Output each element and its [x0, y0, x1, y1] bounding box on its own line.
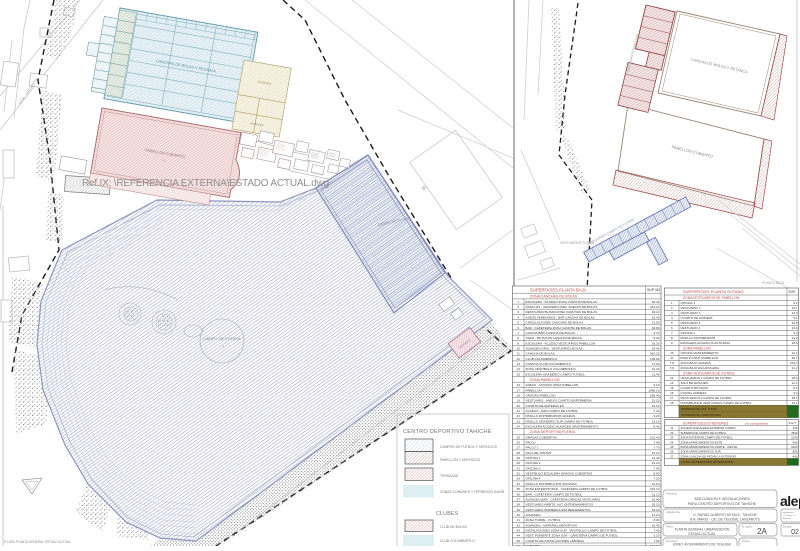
svg-text:ALMACEN - MATERIAL DEPORTIVO: ALMACEN - MATERIAL DEPORTIVO [526, 523, 578, 527]
svg-text:9.20: 9.20 [653, 414, 659, 418]
svg-text:38: 38 [516, 503, 520, 507]
svg-text:201.10: 201.10 [650, 487, 660, 491]
svg-text:DISTRIBUIDOR VESTUARIOS CAMPO: DISTRIBUIDOR VESTUARIOS CAMPO DE FUTBOL [681, 401, 753, 405]
svg-text:4: 4 [517, 315, 519, 319]
svg-text:SUPERFICIES PLANTA BAJA: SUPERFICIES PLANTA BAJA [530, 287, 587, 292]
svg-text:8.40: 8.40 [653, 425, 659, 429]
svg-text:PASILLO DISTRIBUCION OFICINAS: PASILLO DISTRIBUCION OFICINAS [526, 482, 577, 486]
svg-text:OFICINA MANTENIMIENTO: OFICINA MANTENIMIENTO [681, 351, 720, 355]
svg-text:18: 18 [670, 401, 674, 405]
svg-text:PASILLO DISTRIBUIDOR GRADAS: PASILLO DISTRIBUIDOR GRADAS [526, 414, 576, 418]
svg-text:15: 15 [516, 372, 520, 376]
svg-text:7.40: 7.40 [653, 528, 659, 532]
svg-text:OFICINA 3: OFICINA 3 [526, 466, 541, 470]
svg-text:02: 02 [791, 529, 799, 536]
svg-text:7840: 7840 [791, 431, 798, 435]
svg-text:14: 14 [670, 381, 674, 385]
svg-text:1086.10: 1086.10 [648, 388, 659, 392]
svg-text:VESTUARIO PRIMEROS ENTRENAMIEN: VESTUARIO PRIMEROS ENTRENAMIENTOS [526, 508, 591, 512]
svg-text:COCINA LIMPIEZA: COCINA LIMPIEZA [681, 391, 707, 395]
svg-text:22: 22 [670, 431, 674, 435]
svg-text:SUP. M2: SUP. M2 [647, 288, 660, 292]
svg-text:ESCALERA ACCESO PLANTA BAJA: ESCALERA ACCESO PLANTA BAJA [681, 341, 731, 345]
svg-text:9.4: 9.4 [793, 331, 798, 335]
svg-text:ZONA VESTUARIOS DE PABELLON: ZONA VESTUARIOS DE PABELLON [683, 296, 740, 300]
svg-text:7.40: 7.40 [653, 441, 659, 445]
svg-text:ALMACEN: ALMACEN [526, 513, 541, 517]
svg-text:15.10: 15.10 [652, 399, 660, 403]
svg-text:21.10: 21.10 [652, 367, 660, 371]
svg-text:PASILLO DISTRIBUIDOR: PASILLO DISTRIBUIDOR [681, 336, 716, 340]
svg-text:26: 26 [670, 450, 674, 454]
svg-text:SUPERFICIES EXTERIORES: SUPERFICIES EXTERIORES [683, 421, 729, 425]
svg-text:CLUB COLOMBOFILO: CLUB COLOMBOFILO [526, 357, 558, 361]
svg-text:12: 12 [516, 357, 520, 361]
svg-text:ASEOS FEMENINOS - BAR CANCHA D: ASEOS FEMENINOS - BAR CANCHA DE BOLAS [526, 315, 595, 319]
svg-text:CAMPOS DE FUTBOL Y SERVICIOS: CAMPOS DE FUTBOL Y SERVICIOS [440, 445, 498, 449]
svg-text:INSTALACIONES ZONA SUR - VESTI: INSTALACIONES ZONA SUR - VESTIBULO CAMPO… [526, 528, 618, 532]
svg-text:92.10: 92.10 [652, 310, 660, 314]
svg-text:45: 45 [516, 539, 520, 543]
svg-text:SUPERFICIE CAMPO DE FUTBOL: SUPERFICIE CAMPO DE FUTBOL [681, 431, 727, 435]
svg-text:11.40: 11.40 [652, 456, 660, 460]
svg-text:SUPERFICIES PLANTA SOTANO: SUPERFICIES PLANTA SOTANO [683, 289, 744, 294]
svg-text:11: 11 [670, 356, 673, 360]
svg-text:CLUB DE BOLAS: CLUB DE BOLAS [440, 525, 468, 529]
svg-text:25: 25 [516, 435, 520, 439]
svg-text:27: 27 [516, 446, 520, 450]
svg-text:23: 23 [516, 419, 520, 423]
svg-text:5: 5 [517, 321, 519, 325]
svg-text:ACCESO - BAR CAMPO DE FUTBOL: ACCESO - BAR CAMPO DE FUTBOL [526, 409, 579, 413]
svg-text:CIRCULACIONES CANCHAS DE BOLAS: CIRCULACIONES CANCHAS DE BOLAS [526, 321, 584, 325]
svg-text:Proyecto: Proyecto [666, 492, 677, 496]
svg-text:10: 10 [670, 351, 674, 355]
svg-text:18: 18 [516, 394, 520, 398]
svg-text:+ 2: + 2 [220, 344, 225, 348]
svg-text:21: 21 [670, 426, 674, 430]
svg-text:ZONA CANCHAS DE BOLAS: ZONA CANCHAS DE BOLAS [530, 295, 578, 299]
svg-text:PLANTA BAJA: PLANTA BAJA [762, 281, 785, 285]
svg-text:SUPERFICIE UTIL TOTAL: SUPERFICIE UTIL TOTAL [681, 407, 718, 411]
svg-text:7.20: 7.20 [653, 539, 659, 543]
svg-text:961.20: 961.20 [650, 352, 660, 356]
svg-text:2140: 2140 [791, 436, 798, 440]
svg-text:ZONA BAJO GRADAS: ZONA BAJO GRADAS [681, 361, 711, 365]
svg-text:7.70: 7.70 [653, 446, 659, 450]
svg-text:16.40: 16.40 [652, 346, 660, 350]
svg-text:PALCO 2: PALCO 2 [526, 446, 539, 450]
svg-text:CUARTO DE INSTALACIONES LIMPIE: CUARTO DE INSTALACIONES LIMPIEZA [526, 539, 585, 543]
svg-text:TOTAL SUPERFICIES EXTERIORES: TOTAL SUPERFICIES EXTERIORES [681, 460, 733, 464]
svg-text:VESTUARIO 2: VESTUARIO 2 [681, 311, 701, 315]
svg-text:340: 340 [793, 426, 798, 430]
svg-text:42: 42 [516, 523, 520, 527]
svg-text:ALMACEN BAR - CAFETERIA GRADAS: ALMACEN BAR - CAFETERIA GRADAS VESTUARIO [526, 497, 601, 501]
svg-text:15.10: 15.10 [652, 461, 660, 465]
svg-text:36: 36 [516, 492, 520, 496]
svg-text:BAR - CAFETERIA CAMPO DE FUTBO: BAR - CAFETERIA CAMPO DE FUTBOL [526, 492, 583, 496]
svg-text:CAMPO DE FUTBOL: CAMPO DE FUTBOL [203, 336, 242, 341]
svg-text:ZONA APARCAMIENTOS NORTE - OES: ZONA APARCAMIENTOS NORTE - OESTE [681, 445, 738, 449]
svg-text:21.10: 21.10 [652, 482, 660, 486]
svg-text:43: 43 [516, 528, 520, 532]
svg-text:25: 25 [670, 445, 674, 449]
svg-text:CLUBES: CLUBES [436, 511, 459, 517]
svg-text:VESTUARIO 1: VESTUARIO 1 [681, 306, 701, 310]
svg-text:24.1: 24.1 [792, 306, 798, 310]
svg-text:ANEXO - ACCESO ZONA PABELLON: ANEXO - ACCESO ZONA PABELLON [526, 383, 579, 387]
svg-text:15.10: 15.10 [652, 419, 660, 423]
svg-text:46.90: 46.90 [652, 326, 660, 330]
svg-text:17: 17 [670, 396, 674, 400]
svg-text:32: 32 [516, 472, 520, 476]
svg-text:S.E.T.: S.E.T. [789, 421, 797, 425]
svg-text:OFICINA 4: OFICINA 4 [526, 477, 541, 481]
svg-text:CANCHA CLUB COLOMBOFILO: CANCHA CLUB COLOMBOFILO [526, 362, 572, 366]
svg-text:9: 9 [517, 341, 519, 345]
svg-text:PABELLON Y SERVICIOS: PABELLON Y SERVICIOS [440, 458, 481, 462]
svg-text:8.40: 8.40 [653, 518, 659, 522]
svg-text:SUPERFICIE CONSTRUIDA: SUPERFICIE CONSTRUIDA [681, 413, 722, 417]
svg-text:aleph: aleph [780, 493, 800, 509]
svg-text:10.40: 10.40 [652, 315, 660, 319]
svg-text:44: 44 [516, 534, 520, 538]
svg-text:34: 34 [516, 482, 520, 486]
svg-text:OFICINA 1: OFICINA 1 [681, 301, 696, 305]
svg-text:SALA DE MASAJES: SALA DE MASAJES [681, 381, 708, 385]
svg-text:Arquitectos: Arquitectos [666, 510, 681, 514]
svg-text:6.10: 6.10 [653, 383, 659, 387]
svg-text:24.3: 24.3 [792, 311, 798, 315]
svg-text:12.1: 12.1 [792, 381, 798, 385]
svg-text:860: 860 [793, 450, 798, 454]
svg-text:22: 22 [516, 414, 520, 418]
svg-text:40: 40 [516, 513, 520, 517]
svg-text:OFICINA 2: OFICINA 2 [681, 331, 696, 335]
svg-text:COCINA BAR-CANCHA DE BOLAS: COCINA BAR-CANCHA DE BOLAS [526, 331, 575, 335]
svg-text:VESTIBULO ESCALERA GRADAS CUBI: VESTIBULO ESCALERA GRADAS CUBIERTAS [526, 472, 593, 476]
svg-text:VEST. PONIENTE ZONA SUR - CAFE: VEST. PONIENTE ZONA SUR - CAFETERIA CAMP… [526, 534, 619, 538]
svg-text:ZONA APARCAMIENTOS ESTE: ZONA APARCAMIENTOS ESTE [681, 440, 723, 444]
svg-text:2A: 2A [757, 527, 767, 536]
svg-text:Plano: Plano [666, 525, 674, 529]
svg-text:EXMO. AYUNTAMIENTO DE TEGUISE: EXMO. AYUNTAMIENTO DE TEGUISE [673, 543, 732, 546]
svg-text:VESTUARIO 4: VESTUARIO 4 [681, 326, 701, 330]
svg-text:CANCHA DE BOLAS: CANCHA DE BOLAS [526, 352, 555, 356]
svg-text:ZONA CANCHA DE PETANCA EXTERIO: ZONA CANCHA DE PETANCA EXTERIOR [681, 454, 736, 458]
svg-text:29: 29 [516, 456, 520, 460]
svg-text:15.10: 15.10 [652, 404, 660, 408]
svg-text:16: 16 [670, 391, 674, 395]
svg-text:A.R. MARIO - C/E. DE TEGUISE,: A.R. MARIO - C/E. DE TEGUISE, LANZAROTE [690, 517, 761, 521]
svg-text:TERRAZAS: TERRAZAS [440, 474, 459, 478]
svg-text:136.90: 136.90 [650, 357, 660, 361]
svg-text:6: 6 [517, 326, 519, 330]
svg-text:OFICINA 2: OFICINA 2 [526, 461, 541, 465]
svg-text:1: 1 [517, 300, 519, 304]
svg-text:35: 35 [516, 487, 520, 491]
svg-text:23: 23 [670, 436, 674, 440]
svg-text:ZONA ESTERIOR CAMPO DE FUTBOL: ZONA ESTERIOR CAMPO DE FUTBOL [681, 436, 733, 440]
svg-text:PALCO: PALCO [526, 441, 537, 445]
svg-text:31.2: 31.2 [792, 336, 798, 340]
svg-text:30: 30 [516, 461, 520, 465]
svg-text:ZONA TORRE - FUTBOL: ZONA TORRE - FUTBOL [526, 518, 561, 522]
svg-text:D. RAFAEL ALBERTO Mª MUJI - T: D. RAFAEL ALBERTO Mª MUJI - TAHICHE [693, 513, 757, 517]
svg-text:ZONA VESTIBULO COLOMBOFILO: ZONA VESTIBULO COLOMBOFILO [526, 367, 577, 371]
svg-text:7-8: 7-8 [670, 361, 675, 365]
svg-text:ACCESO ESCALERA EXTERIOR CAMPO: ACCESO ESCALERA EXTERIOR CAMPO [681, 426, 737, 430]
svg-text:PABELLON: PABELLON [526, 388, 542, 392]
svg-text:12.4: 12.4 [792, 351, 798, 355]
svg-text:RESTAURANTE-BAR ZONA CANCHAS D: RESTAURANTE-BAR ZONA CANCHAS DE BOLAS [526, 310, 598, 314]
svg-text:CUARTO DE LIMPIEZA: CUARTO DE LIMPIEZA [681, 316, 713, 320]
svg-text:N. plano: N. plano [742, 525, 753, 529]
svg-text:PLANTA GENERAL URBANIZACION: PLANTA GENERAL URBANIZACION [675, 527, 730, 531]
svg-text:3: 3 [517, 310, 519, 314]
svg-text:C/ Leon y C.: C/ Leon y C. [783, 515, 796, 517]
svg-text:GRADAS PABELLON: GRADAS PABELLON [526, 394, 556, 398]
svg-text:21.2: 21.2 [792, 366, 798, 370]
svg-text:ESCALERA - ACCESO VESTUARIOS P: ESCALERA - ACCESO VESTUARIOS PABELLON [526, 341, 596, 345]
svg-text:SUP.: SUP. [789, 290, 796, 294]
svg-text:6.1: 6.1 [793, 316, 798, 320]
svg-text:23.10: 23.10 [652, 451, 660, 455]
svg-text:9.2: 9.2 [793, 301, 798, 305]
svg-text:7.40: 7.40 [653, 466, 659, 470]
svg-text:24: 24 [516, 425, 520, 429]
svg-text:VESTUARIOS 1 CAMPO DE FUTBOL: VESTUARIOS 1 CAMPO DE FUTBOL [681, 376, 733, 380]
svg-text:16.40: 16.40 [652, 523, 660, 527]
svg-text:arquitectos: arquitectos [783, 511, 795, 514]
svg-text:20: 20 [516, 404, 520, 408]
svg-text:71.00: 71.00 [652, 362, 660, 366]
svg-text:28: 28 [516, 451, 520, 455]
svg-text:ZONA DEPORTIVA FUTBOL: ZONA DEPORTIVA FUTBOL [530, 430, 576, 434]
svg-text:ZONA ESTERIOR BAR - CAFETERIA: ZONA ESTERIOR BAR - CAFETERIA CAMPO DE F… [526, 487, 609, 491]
svg-text:5.20: 5.20 [653, 534, 659, 538]
svg-text:13: 13 [670, 376, 674, 380]
svg-text:14: 14 [516, 367, 520, 371]
svg-text:ZONA VESTUARIOS DE FUTBOL: ZONA VESTUARIOS DE FUTBOL [683, 372, 735, 376]
svg-text:24.1: 24.1 [792, 401, 798, 405]
svg-text:31: 31 [516, 466, 520, 470]
svg-text:ZONA BAJO ESCAPULARIA: ZONA BAJO ESCAPULARIA [681, 366, 720, 370]
svg-text:18.6: 18.6 [792, 341, 798, 345]
svg-text:ESCALERA-GRADERIO CAMPO FUTBO: ESCALERA-GRADERIO CAMPO FUTBOL [526, 372, 586, 376]
svg-text:33: 33 [516, 477, 520, 481]
svg-text:1620: 1620 [791, 445, 798, 449]
svg-text:ZONA PABELLON: ZONA PABELLON [683, 347, 711, 351]
svg-text:39: 39 [516, 508, 520, 512]
svg-text:CUARTO BOTIQUIN: CUARTO BOTIQUIN [681, 386, 709, 390]
svg-text:940: 940 [793, 440, 798, 444]
svg-text:27: 27 [670, 454, 674, 458]
svg-text:285.40: 285.40 [650, 394, 660, 398]
svg-text:OFICINA 1: OFICINA 1 [526, 456, 541, 460]
svg-text:ALMACEN GRAL. VESTUARIOS BOLAS: ALMACEN GRAL. VESTUARIOS BOLAS [526, 346, 583, 350]
svg-text:18.20: 18.20 [652, 341, 660, 345]
svg-text:46.40: 46.40 [652, 300, 660, 304]
svg-text:PASILLOS - GRADERIO RED. ANEXA: PASILLOS - GRADERIO RED. ANEXAS DE BOLAS [526, 305, 598, 309]
svg-text:2: 2 [517, 305, 519, 309]
svg-text:19: 19 [516, 399, 520, 403]
svg-text:8: 8 [517, 336, 519, 340]
svg-text:7.40: 7.40 [653, 409, 659, 413]
svg-text:21.90: 21.90 [652, 321, 660, 325]
svg-text:ADECUACION E INSTALACIONES: ADECUACION E INSTALACIONES [694, 497, 750, 501]
svg-text:VESTUARIO ARBITS. AUT. ENTRENA: VESTUARIO ARBITS. AUT. ENTRENAMIENTOS [526, 503, 594, 507]
svg-text:10.40: 10.40 [652, 497, 660, 501]
svg-text:26: 26 [516, 441, 520, 445]
svg-text:Ref.IX: \REFERENCIA EXTERNA\ES: Ref.IX: \REFERENCIA EXTERNA\ESTADO ACTUA… [82, 178, 329, 189]
svg-text:ZONAS COMUNES Y TERRENOS S/URB: ZONAS COMUNES Y TERRENOS S/URB. [440, 490, 505, 494]
svg-text:23.9: 23.9 [792, 326, 798, 330]
svg-text:7: 7 [517, 331, 519, 335]
svg-text:17: 17 [516, 388, 520, 392]
svg-text:28.4: 28.4 [792, 376, 798, 380]
svg-text:ESCALERA ACCESO ALMACEN MANTEN: ESCALERA ACCESO ALMACEN MANTENIMIENTO [526, 425, 599, 429]
svg-text:ESCALERA - ACCESO ZONA CANCHA: ESCALERA - ACCESO ZONA CANCHA DE BOLAS [526, 300, 597, 304]
svg-text:102.4: 102.4 [790, 361, 798, 365]
svg-text:37: 37 [516, 497, 520, 501]
svg-text:ZONA PABELLON: ZONA PABELLON [530, 378, 560, 382]
svg-text:CUARTO DE MATERIALES: CUARTO DE MATERIALES [526, 404, 564, 408]
svg-text:(no computables): (no computables) [745, 421, 768, 425]
svg-text:PASILLO GRADERIO SUR CAMPO DE: PASILLO GRADERIO SUR CAMPO DE FUTBOL [526, 419, 594, 423]
svg-text:CENTRO DEPORTIVO TAHICHE: CENTRO DEPORTIVO TAHICHE [403, 429, 492, 435]
svg-text:8.90: 8.90 [653, 472, 659, 476]
svg-text:VESTUARIO 3: VESTUARIO 3 [681, 321, 701, 325]
svg-text:GRADAS CUBIERTAS: GRADAS CUBIERTAS [526, 435, 557, 439]
svg-text:21: 21 [516, 409, 520, 413]
svg-text:Fecha: Fecha [742, 539, 750, 543]
svg-text:18.10: 18.10 [652, 503, 660, 507]
svg-text:15: 15 [670, 386, 674, 390]
svg-text:ESTADO ACTUAL: ESTADO ACTUAL [688, 532, 715, 536]
svg-text:440: 440 [793, 454, 798, 458]
svg-text:18.10: 18.10 [652, 508, 660, 512]
svg-text:11: 11 [517, 352, 520, 356]
svg-text:8.2: 8.2 [793, 386, 798, 390]
svg-text:VESTUARIO - ANEXO CUARTO ENFER: VESTUARIO - ANEXO CUARTO ENFERMERIA [526, 399, 593, 403]
svg-text:BAR - CAFETERIA ZONA CANCHA DE: BAR - CAFETERIA ZONA CANCHA DE BOLAS [526, 326, 592, 330]
svg-text:CLUB COLOMBOFILO: CLUB COLOMBOFILO [440, 539, 475, 543]
svg-text:ASEO - BOTIQUIN CANCHA DE BOLA: ASEO - BOTIQUIN CANCHA DE BOLAS [526, 336, 582, 340]
svg-text:7.20: 7.20 [653, 477, 659, 481]
svg-text:444.30: 444.30 [650, 305, 660, 309]
svg-text:11.40: 11.40 [652, 372, 660, 376]
svg-text:16: 16 [516, 383, 520, 387]
svg-text:231.40: 231.40 [650, 435, 660, 439]
svg-text:10: 10 [516, 346, 520, 350]
svg-text:E 1/500 PLANTA GENERAL ESTAD: E 1/500 PLANTA GENERAL ESTADO ACTUAL [4, 540, 71, 544]
svg-text:23.8: 23.8 [792, 321, 798, 325]
svg-text:PASILLO BAJO PABELLON: PASILLO BAJO PABELLON [681, 356, 718, 360]
svg-text:7-9: 7-9 [670, 366, 675, 370]
svg-text:41: 41 [516, 518, 520, 522]
svg-text:9.70: 9.70 [653, 331, 659, 335]
svg-text:51.10: 51.10 [652, 492, 660, 496]
svg-text:24: 24 [670, 440, 674, 444]
svg-text:SALA DE JUNTAS: SALA DE JUNTAS [526, 451, 552, 455]
svg-text:48.2: 48.2 [792, 356, 798, 360]
svg-text:ZONA APARCAMIENTOS SUR: ZONA APARCAMIENTOS SUR [681, 450, 721, 454]
svg-text:VESTUARIOS 2 CAMPO DE FUTBOL: VESTUARIOS 2 CAMPO DE FUTBOL [681, 396, 733, 400]
svg-text:6.4: 6.4 [793, 391, 798, 395]
svg-text:5.40: 5.40 [653, 336, 659, 340]
svg-text:Escala: Escala [783, 525, 792, 529]
svg-text:13: 13 [516, 362, 520, 366]
svg-text:28.2: 28.2 [792, 396, 798, 400]
svg-text:Arrecife: Arrecife [783, 517, 791, 520]
svg-text:PARA CENTRO DEPORTIVO DE TAHI: PARA CENTRO DEPORTIVO DE TAHICHE [688, 502, 757, 506]
svg-text:11.10: 11.10 [652, 513, 660, 517]
